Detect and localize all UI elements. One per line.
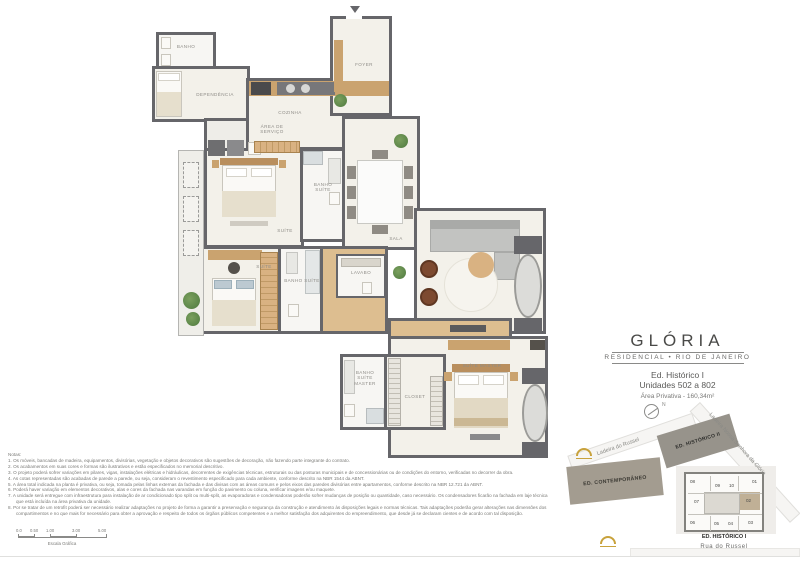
grid-line <box>710 516 711 531</box>
grid-line <box>688 493 762 494</box>
nightstand <box>510 372 518 381</box>
project-title: GLÓRIA <box>600 331 755 351</box>
condenser-unit <box>183 230 199 256</box>
notes-block: Notas: 1. Os móveis, bancadas de madeira… <box>8 452 556 517</box>
pillow <box>458 375 479 385</box>
closet-shelves <box>388 358 401 426</box>
dining-chair <box>347 206 356 219</box>
grid-line <box>738 516 739 531</box>
scale-tick-label: 0.0 <box>16 528 22 533</box>
pillow <box>158 73 180 81</box>
room-label: DEPENDÊNCIA <box>184 92 246 97</box>
condenser-unit <box>183 196 199 222</box>
foyer-sideboard <box>334 40 343 92</box>
cooktop <box>251 82 271 95</box>
toilet <box>329 192 340 205</box>
sofa <box>430 228 520 252</box>
desk <box>448 340 510 350</box>
room-label: ÁREA DE SERVIÇO <box>252 124 292 135</box>
blanket <box>157 92 181 116</box>
plant-icon <box>186 312 200 326</box>
room-label: BANHO <box>158 44 214 49</box>
pillow <box>251 168 272 177</box>
building-historico-1-plan: 08 09 10 01 07 02 06 05 04 03 <box>684 472 764 532</box>
building-label: ED. HISTÓRICO II <box>675 431 721 450</box>
vanity <box>341 258 381 267</box>
armchair <box>420 288 438 306</box>
room-label: CLOSET <box>400 394 430 399</box>
bed-bench <box>470 434 500 440</box>
street-label: Rua do Russel <box>684 544 764 550</box>
brand-logo-icon <box>600 536 616 544</box>
dryer <box>227 140 244 156</box>
note-item: 7. A unidade será entregue com infraestr… <box>8 493 556 505</box>
dining-chair <box>404 186 413 199</box>
unit-number: 02 <box>746 498 751 503</box>
grid-line <box>710 476 711 491</box>
scale-segment <box>18 536 34 538</box>
compass-icon <box>644 404 659 419</box>
room-label: COZINHA <box>268 110 312 115</box>
toilet <box>344 404 355 417</box>
nightstand <box>212 160 219 168</box>
dining-chair <box>372 225 388 234</box>
unit-number: 01 <box>752 479 757 484</box>
scale-tick-label: 0.50 <box>30 528 38 533</box>
closet-shelves <box>430 376 443 426</box>
room-label: SALA <box>382 236 410 241</box>
rule <box>612 363 744 364</box>
rule <box>612 352 744 353</box>
blanket <box>222 191 276 217</box>
coffee-table <box>468 252 494 278</box>
unit-number: 05 <box>714 521 719 526</box>
armchair <box>420 260 438 278</box>
bed-headboard <box>220 158 278 165</box>
deck-bench <box>450 325 486 332</box>
tv-cabinet <box>530 340 545 350</box>
unit-number: 04 <box>728 521 733 526</box>
toilet <box>362 282 372 294</box>
pillow <box>226 168 247 177</box>
toilet <box>161 54 171 66</box>
pillow <box>236 280 254 289</box>
room-label: FOYER <box>348 62 380 67</box>
nightstand <box>444 372 452 381</box>
toilet <box>288 304 299 317</box>
room-label: BANHO SUÍTE <box>284 278 320 283</box>
bay-window <box>522 384 548 442</box>
dining-chair <box>347 186 356 199</box>
pillow <box>483 375 504 385</box>
wall-pier <box>514 236 542 254</box>
plant-icon <box>183 292 200 309</box>
vanity <box>328 158 341 184</box>
dining-table <box>357 160 403 224</box>
sheet-border <box>0 556 800 557</box>
plant-icon <box>334 94 347 107</box>
note-item: 8. Por se tratar de um retrofit poderá s… <box>8 505 556 517</box>
blanket <box>212 300 256 326</box>
wall-pier <box>522 368 548 384</box>
building-core <box>704 492 740 514</box>
grid-line <box>688 514 762 515</box>
shower <box>305 250 320 294</box>
grid-line <box>738 476 739 491</box>
nightstand <box>279 160 286 168</box>
private-area: Área Privativa - 160,34m² <box>600 393 755 400</box>
bed-runner <box>454 418 508 426</box>
unit-number: 08 <box>690 479 695 484</box>
brand-logo-text-mark <box>600 546 616 547</box>
room-label: BANHO SUÍTE MASTER <box>348 370 382 386</box>
note-item: 3. O projeto poderá sofrer variações em … <box>8 470 556 476</box>
wall-pier <box>514 318 542 334</box>
entry-arrow-icon <box>350 6 360 18</box>
room-label: SUÍTE MASTER <box>456 363 508 368</box>
dining-chair <box>404 206 413 219</box>
compass-needle <box>648 408 658 416</box>
bay-window <box>514 254 542 318</box>
kitchen-sink <box>286 84 295 93</box>
scale-tick-label: 1.00 <box>46 528 54 533</box>
room-label: SUÍTE <box>250 264 278 269</box>
building-label: ED. HISTÓRICO I <box>684 534 764 540</box>
room-label: LAVABO <box>346 270 376 275</box>
washer <box>208 140 225 156</box>
shower <box>303 151 323 165</box>
scale-tick <box>106 534 107 538</box>
project-subtitle: RESIDENCIAL • RIO DE JANEIRO <box>600 354 755 361</box>
dining-chair <box>372 150 388 159</box>
scale-label: Escala Gráfica <box>16 541 108 546</box>
scale-tick-label: 5.00 <box>98 528 106 533</box>
building-name: Ed. Histórico I <box>600 370 755 380</box>
scale-tick <box>76 534 77 538</box>
unit-number: 07 <box>694 499 699 504</box>
sofa-back <box>430 220 520 228</box>
pillow <box>214 280 232 289</box>
plant-icon <box>394 134 408 148</box>
shower <box>366 408 384 424</box>
kitchen-sink <box>301 84 310 93</box>
unit-number: 10 <box>729 483 734 488</box>
plan-sheet: BANHO DEPENDÊNCIA ÁREA DE SERVIÇO COZINH… <box>0 0 800 561</box>
scale-tick-label: 3.00 <box>72 528 80 533</box>
north-label: N <box>662 402 666 408</box>
bed-bench <box>230 221 268 226</box>
brand-logo-text-mark <box>576 458 592 459</box>
vanity <box>286 252 298 274</box>
dining-chair <box>347 166 356 179</box>
scale-tick <box>34 534 35 538</box>
unit-number: 06 <box>690 520 695 525</box>
plant-icon <box>393 266 406 279</box>
room-label: BANHO SUÍTE <box>306 182 340 193</box>
desk-chair <box>228 262 240 274</box>
units-range: Unidades 502 a 802 <box>600 380 755 390</box>
dining-chair <box>404 166 413 179</box>
unit-number: 09 <box>715 483 720 488</box>
room-label: SUÍTE <box>270 228 300 233</box>
scale-bar: 0.0 0.50 1.00 3.00 5.00 Escala Gráfica <box>16 528 112 550</box>
building-label: ED. CONTEMPORÂNEO <box>583 475 647 488</box>
scale-segment <box>50 536 76 538</box>
unit-number: 03 <box>748 520 753 525</box>
condenser-unit <box>183 162 199 188</box>
desk <box>208 250 262 260</box>
wardrobe <box>254 141 300 153</box>
